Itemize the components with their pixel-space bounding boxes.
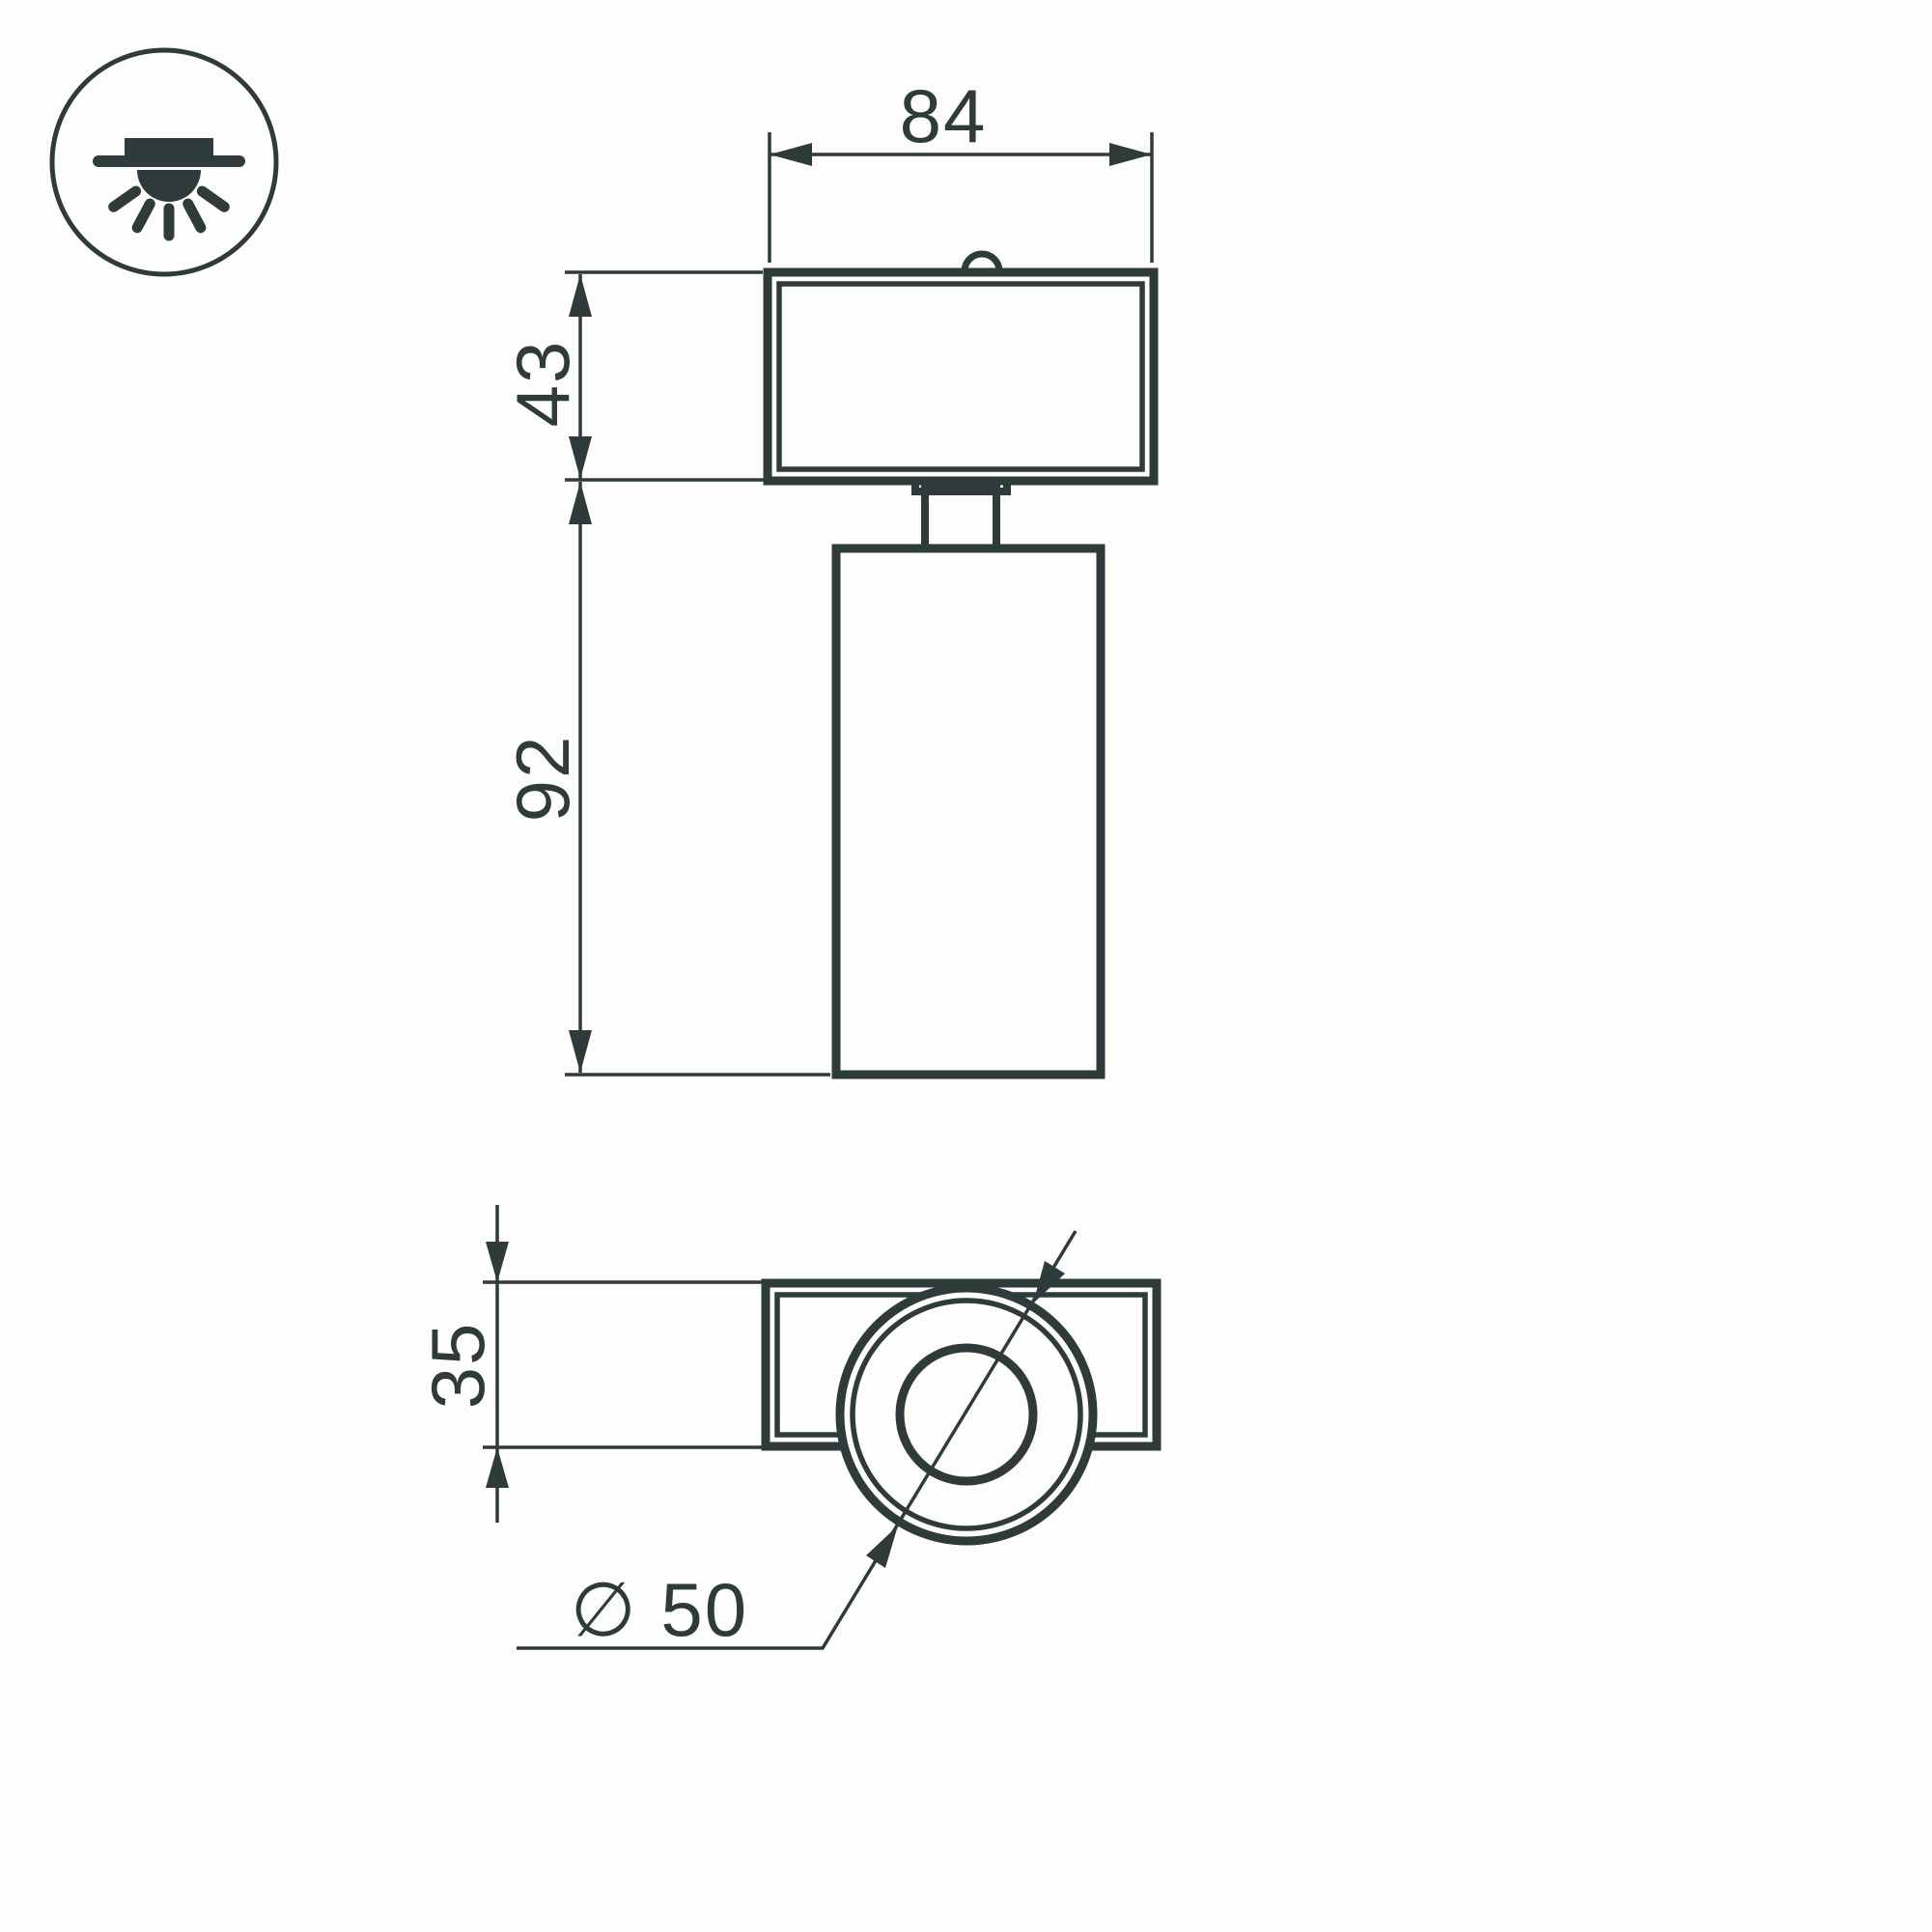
bottom-view	[766, 1283, 1157, 1545]
arrowhead	[770, 143, 812, 166]
arrowhead	[569, 1030, 592, 1073]
mount-box-fill	[768, 272, 1154, 481]
icon-ceiling-bar	[93, 155, 245, 167]
technical-drawing-page: 84 43 92	[0, 0, 1932, 1932]
dim-body-height-label: 92	[500, 735, 585, 823]
ceiling-light-icon	[52, 50, 276, 274]
arrowhead	[1109, 143, 1152, 166]
arrowhead	[569, 274, 592, 317]
front-view	[768, 254, 1154, 1075]
dim-mount-height-43: 43	[500, 272, 765, 480]
arrowhead	[486, 1447, 509, 1488]
arrowhead	[569, 482, 592, 524]
arrowhead	[486, 1242, 509, 1282]
dim-width-label: 84	[900, 73, 988, 158]
dim-mount-height-label: 43	[500, 340, 585, 428]
dim-body-height-92: 92	[500, 482, 830, 1075]
joint-neck	[925, 489, 996, 550]
lamp-body-fill	[836, 548, 1101, 1075]
dim-bracket-depth-label: 35	[415, 1322, 500, 1410]
luminaire-dimension-drawing: 84 43 92	[0, 0, 1932, 1932]
dim-width-84: 84	[770, 73, 1152, 263]
icon-lamp-dome	[137, 170, 201, 202]
dim-diameter-label: ∅ 50	[571, 1567, 748, 1652]
arrowhead	[569, 436, 592, 479]
dim-bracket-depth-35: 35	[415, 1205, 763, 1523]
arrowhead	[866, 1526, 898, 1568]
